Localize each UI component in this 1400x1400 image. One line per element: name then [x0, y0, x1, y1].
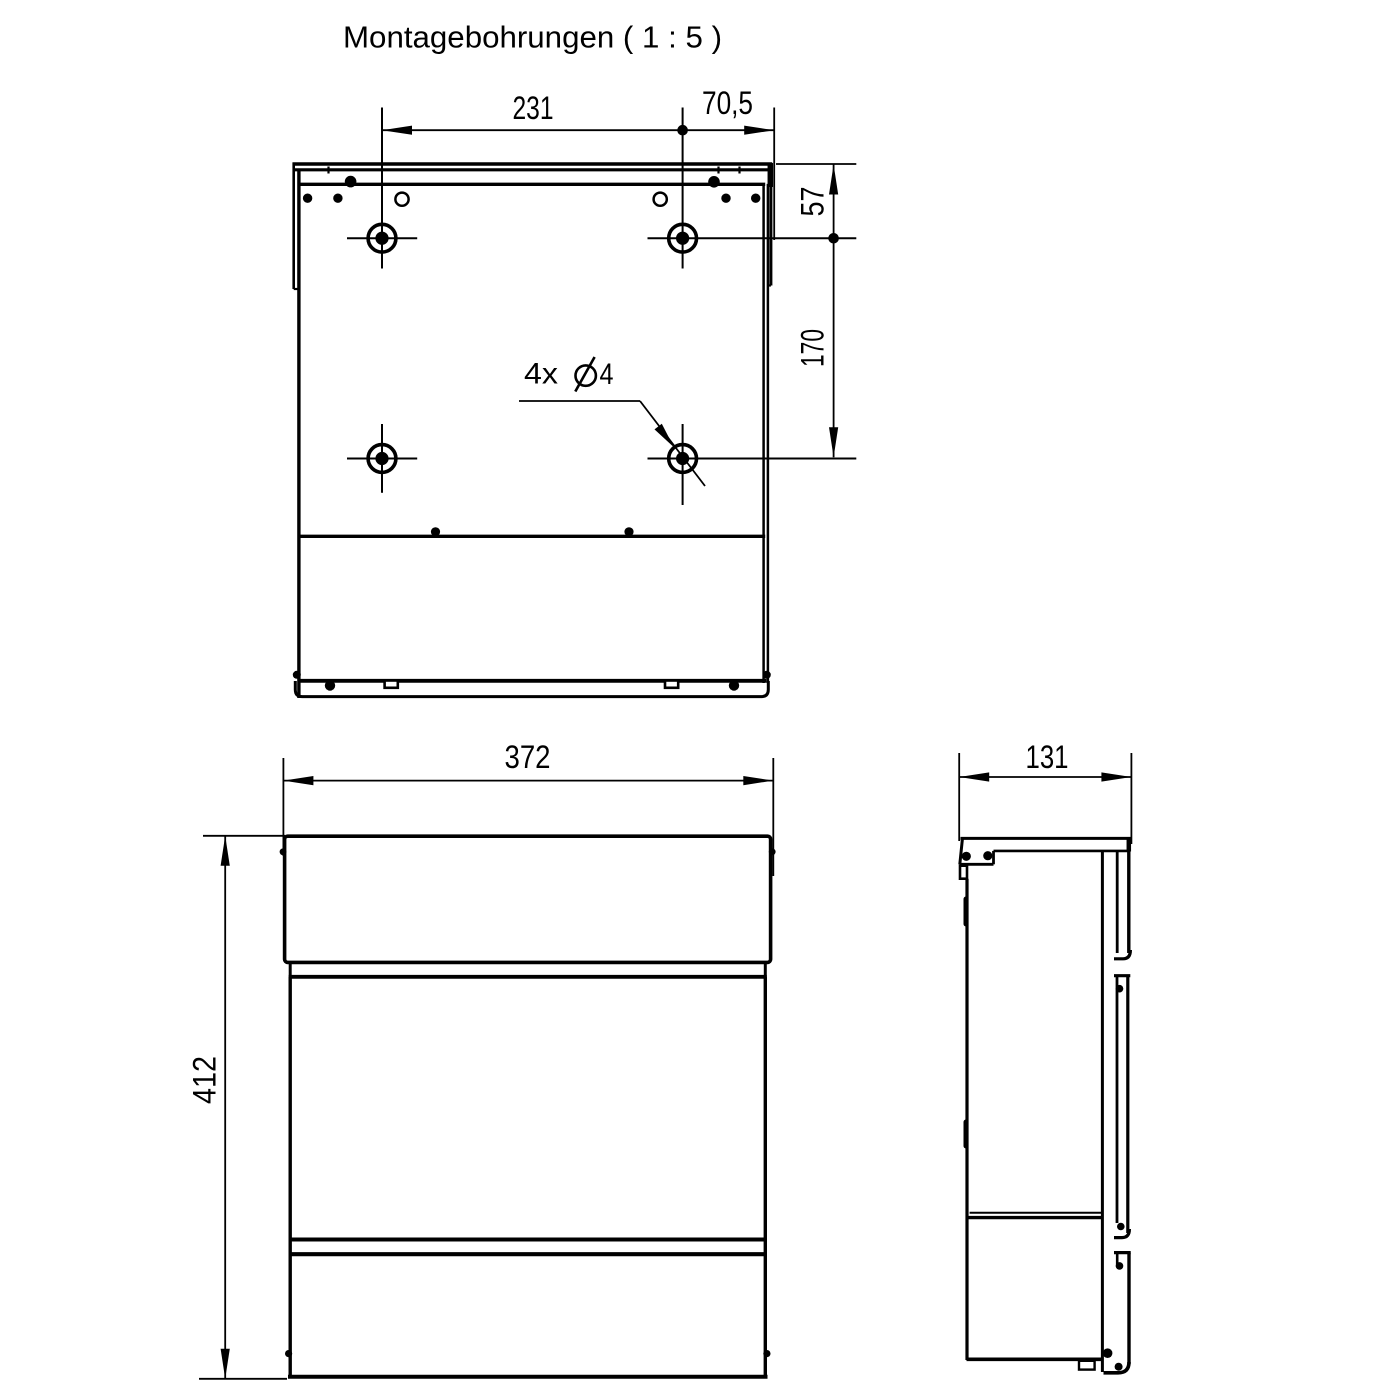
svg-text:Montagebohrungen ( 1 : 5 ): Montagebohrungen ( 1 : 5 ): [343, 20, 722, 55]
svg-text:131: 131: [1026, 739, 1069, 775]
svg-text:4x: 4x: [524, 358, 558, 391]
svg-text:57: 57: [795, 187, 831, 217]
svg-text:372: 372: [505, 739, 551, 775]
svg-text:231: 231: [513, 90, 554, 126]
svg-text:4: 4: [600, 358, 614, 391]
svg-text:412: 412: [187, 1056, 223, 1104]
svg-text:170: 170: [795, 329, 831, 367]
svg-text:70,5: 70,5: [702, 85, 753, 121]
